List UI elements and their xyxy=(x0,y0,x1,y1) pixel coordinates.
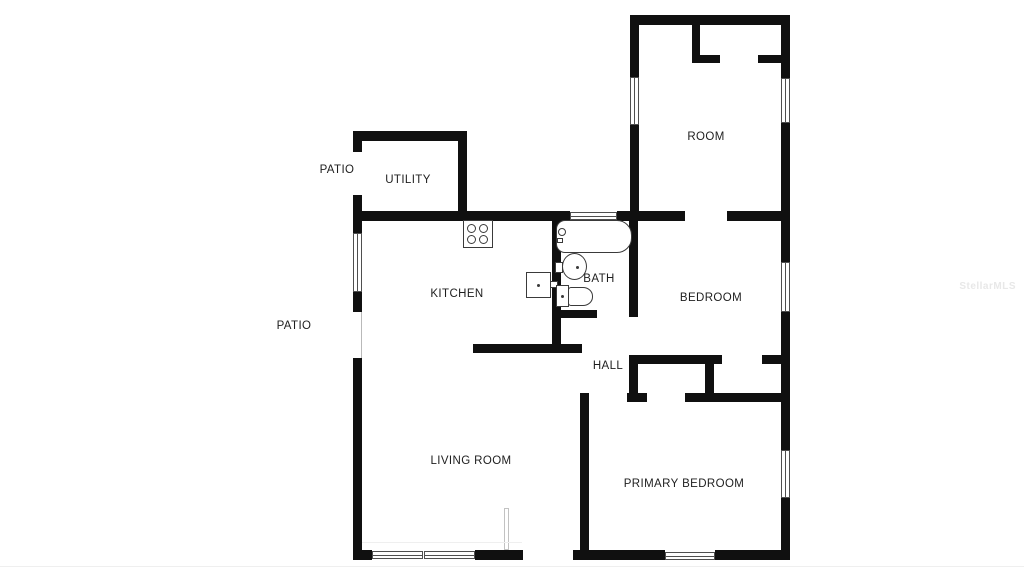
window xyxy=(570,212,617,220)
patio-opening-line xyxy=(361,312,362,358)
door-leaf-icon xyxy=(504,508,509,550)
wall xyxy=(353,131,467,141)
porch-edge-line xyxy=(362,542,522,543)
wall xyxy=(781,312,790,450)
stove-burner-icon xyxy=(479,235,488,244)
toilet-dot xyxy=(561,295,564,298)
stove-burner-icon xyxy=(479,224,488,233)
bathtub-icon xyxy=(556,220,632,253)
room-label-living-room: LIVING ROOM xyxy=(430,455,511,467)
window xyxy=(630,77,639,125)
wall xyxy=(353,131,362,152)
window xyxy=(665,552,715,560)
patio-label-lower: PATIO xyxy=(277,320,312,332)
bedroom-bottom-wall xyxy=(762,355,790,364)
wall xyxy=(781,15,790,78)
wall xyxy=(353,550,372,560)
watermark-text: StellarMLS xyxy=(959,281,1016,292)
primary-top-wall xyxy=(685,393,790,402)
image-edge-line xyxy=(0,566,1024,567)
room-label-kitchen: KITCHEN xyxy=(430,288,483,300)
bathtub-faucet-icon xyxy=(558,228,566,236)
wall xyxy=(353,358,362,550)
wall xyxy=(353,195,362,221)
kitchen-sink-icon xyxy=(526,272,551,298)
drain-dot xyxy=(576,266,579,269)
window xyxy=(353,233,362,292)
window xyxy=(781,450,790,498)
stove-icon xyxy=(463,220,493,248)
floor-plan: ROOM UTILITY PATIO KITCHEN BATH BEDROOM … xyxy=(0,0,1024,575)
wall xyxy=(630,15,639,77)
closet-wall xyxy=(758,55,782,63)
room-label-utility: UTILITY xyxy=(385,174,431,186)
wall xyxy=(353,292,362,312)
window xyxy=(424,551,475,559)
bath-bottom-wall xyxy=(552,310,597,318)
primary-top-wall xyxy=(627,393,647,402)
room-label-bath: BATH xyxy=(583,273,614,285)
wall xyxy=(715,550,790,560)
room-label-room: ROOM xyxy=(687,131,724,143)
bathtub-faucet-icon xyxy=(557,238,563,243)
room-label-bedroom: BEDROOM xyxy=(680,292,742,304)
stove-burner-icon xyxy=(467,235,476,244)
wall xyxy=(353,221,362,233)
wall xyxy=(475,550,523,560)
bathroom-sink-counter-icon xyxy=(555,262,563,273)
wall xyxy=(727,211,790,221)
room-label-hall: HALL xyxy=(593,360,623,372)
kitchen-bottom-wall xyxy=(473,344,582,353)
window xyxy=(781,262,790,312)
wall xyxy=(458,131,467,221)
toilet-bowl-icon xyxy=(568,287,593,306)
wall xyxy=(781,123,790,262)
drain-dot xyxy=(537,284,540,287)
closet-wall xyxy=(692,55,720,63)
bath-right-wall xyxy=(629,211,638,317)
wall xyxy=(630,15,790,25)
primary-left-wall xyxy=(580,393,589,560)
patio-label-upper: PATIO xyxy=(320,164,355,176)
wall xyxy=(617,211,685,221)
wall xyxy=(630,125,639,217)
window xyxy=(781,78,790,123)
room-label-primary-bedroom: PRIMARY BEDROOM xyxy=(624,478,745,490)
stove-burner-icon xyxy=(467,224,476,233)
window xyxy=(372,551,423,559)
